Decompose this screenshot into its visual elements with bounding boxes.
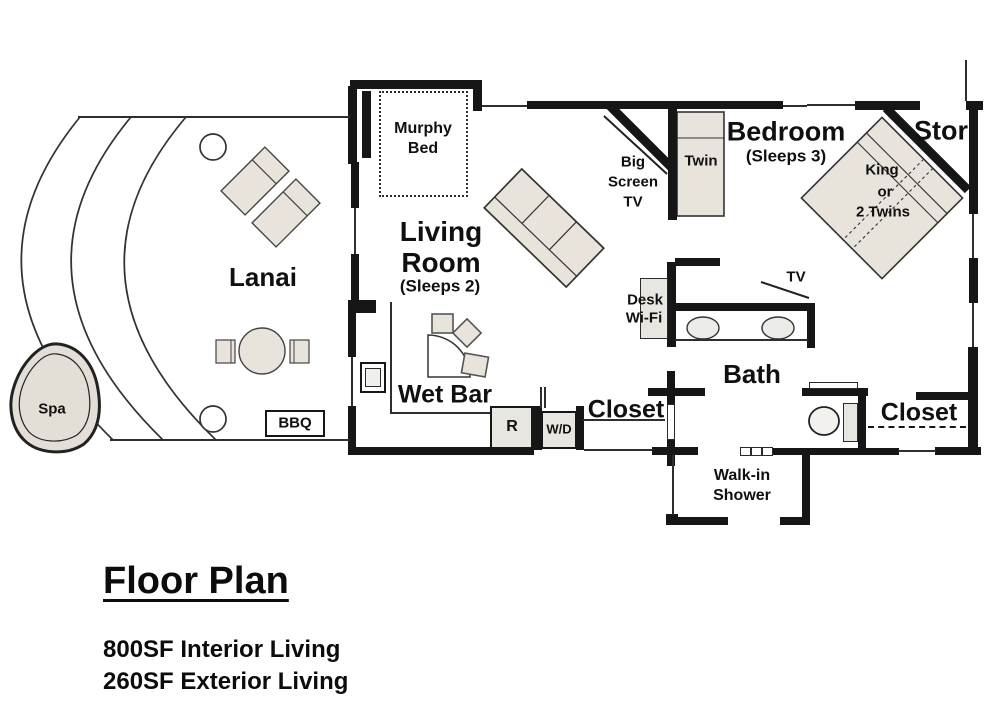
wall-segment xyxy=(348,406,356,449)
window-line xyxy=(972,214,974,258)
king-bed-label: 2 Twins xyxy=(856,205,910,220)
wall-segment xyxy=(855,101,920,110)
king-bed-label: or xyxy=(878,185,893,200)
washer-dryer-label: W/D xyxy=(546,423,571,436)
wall-segment xyxy=(351,254,359,302)
desk-box xyxy=(640,278,668,339)
wall-segment xyxy=(969,101,978,214)
towel-shelf xyxy=(809,382,858,389)
window-line xyxy=(675,339,808,341)
wall-segment xyxy=(473,80,482,111)
living-room-label: Room xyxy=(401,249,480,277)
lanai-column xyxy=(200,406,226,432)
wall-segment xyxy=(350,80,480,89)
lanai-curve-inner xyxy=(124,117,216,440)
wall-segment xyxy=(348,300,376,313)
exterior-living-area: 260SF Exterior Living xyxy=(103,670,348,694)
desk-label: Wi-Fi xyxy=(626,311,663,326)
bath-label: Bath xyxy=(723,361,781,387)
wall-segment xyxy=(348,313,356,357)
patio-chair xyxy=(290,340,309,363)
shower-door-track xyxy=(762,447,773,456)
wall-segment xyxy=(968,347,978,453)
window-line xyxy=(898,450,936,452)
wet-bar-sink-basin xyxy=(365,368,381,387)
window-line xyxy=(540,387,542,408)
shower-door-track xyxy=(751,447,762,456)
window-line xyxy=(807,104,855,106)
wall-segment xyxy=(351,162,359,208)
plan-graphics xyxy=(0,0,1000,726)
window-line xyxy=(972,303,974,347)
interior-living-area: 800SF Interior Living xyxy=(103,638,340,662)
vanity-sink xyxy=(687,317,719,339)
hall-closet-label: Closet xyxy=(588,398,664,423)
wall-segment xyxy=(666,517,728,525)
big-screen-tv-label: TV xyxy=(623,195,642,210)
wall-segment xyxy=(668,105,677,220)
king-bed-label: King xyxy=(865,163,898,178)
wall-segment xyxy=(348,86,357,164)
window-line xyxy=(354,208,356,254)
wall-segment xyxy=(807,303,815,348)
sofa xyxy=(484,169,604,287)
bedroom-label: Bedroom xyxy=(727,119,846,146)
vanity-sink xyxy=(762,317,794,339)
spa-tub xyxy=(11,344,100,452)
murphy-bed-label: Murphy xyxy=(394,121,452,137)
floor-plan: Lanai Spa BBQ Murphy Bed Living Room (Sl… xyxy=(0,0,1000,726)
big-screen-tv-label: Big xyxy=(621,155,645,170)
wet-bar-label: Wet Bar xyxy=(398,383,492,408)
wall-segment xyxy=(362,91,371,158)
wall-segment xyxy=(576,406,584,450)
desk-label: Desk xyxy=(627,293,663,308)
window-line xyxy=(584,449,653,451)
living-room-label: Living xyxy=(400,218,482,246)
wall-segment xyxy=(675,303,815,311)
wall-segment xyxy=(773,448,899,455)
spa-label: Spa xyxy=(38,402,66,417)
window-line xyxy=(390,302,392,413)
wall-segment xyxy=(652,447,698,455)
refrigerator-label: R xyxy=(506,419,518,435)
bar-stool xyxy=(453,319,481,347)
bar-stool xyxy=(432,314,453,333)
window-line xyxy=(672,455,674,515)
wall-segment xyxy=(675,258,720,266)
toilet-bowl xyxy=(809,407,839,435)
window-line xyxy=(110,439,350,441)
bedroom-sleeps-label: (Sleeps 3) xyxy=(746,148,826,165)
toilet-tank xyxy=(843,403,858,442)
window-line xyxy=(965,60,967,101)
bbq-label: BBQ xyxy=(278,416,311,431)
walk-in-shower-label: Walk-in xyxy=(714,468,770,484)
wall-segment xyxy=(802,452,810,520)
wall-segment xyxy=(527,101,783,109)
shower-door-track xyxy=(740,447,751,456)
pocket-door xyxy=(667,404,675,440)
patio-table xyxy=(239,328,285,374)
bedroom-closet-label: Closet xyxy=(881,401,957,426)
bar-stool xyxy=(461,353,488,377)
window-line xyxy=(351,357,353,406)
living-room-sleeps-label: (Sleeps 2) xyxy=(400,278,480,295)
window-line xyxy=(482,105,527,107)
window-line xyxy=(783,105,807,107)
patio-chair xyxy=(216,340,235,363)
bedroom-tv-label: TV xyxy=(786,270,805,285)
lanai-column xyxy=(200,134,226,160)
twin-bed-label: Twin xyxy=(684,154,717,169)
window-line xyxy=(544,387,546,408)
window-line xyxy=(390,412,490,414)
wall-segment xyxy=(969,258,978,303)
big-screen-tv-label: Screen xyxy=(608,175,658,190)
storage-label: Stor xyxy=(914,118,968,145)
walk-in-shower-label: Shower xyxy=(713,488,771,504)
window-line xyxy=(78,116,350,118)
murphy-bed-label: Bed xyxy=(408,141,438,157)
lanai-label: Lanai xyxy=(229,264,297,290)
page-title: Floor Plan xyxy=(103,562,289,600)
wall-segment xyxy=(858,394,866,453)
